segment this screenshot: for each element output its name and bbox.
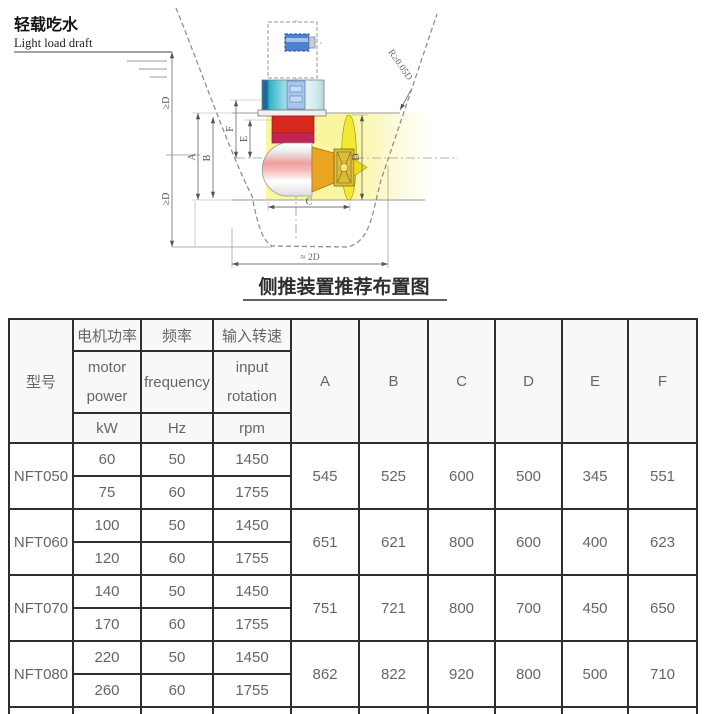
dim-label-above-d: ≥D	[161, 97, 172, 110]
electric-motor	[285, 34, 309, 51]
kw-cell: 170	[73, 608, 141, 641]
header-unit-hz: Hz	[141, 413, 213, 443]
rpm-cell: 1755	[213, 674, 291, 707]
header-en-line: rotation	[214, 382, 290, 411]
pod-body	[262, 143, 312, 196]
rpm-cell: 1755	[213, 608, 291, 641]
page: 轻载吃水 Light load draft	[0, 0, 707, 714]
kw-cell: 260	[73, 674, 141, 707]
dim-c-cell: 920	[428, 641, 495, 707]
kw-cell: 60	[73, 443, 141, 476]
empty-cell	[141, 707, 213, 714]
waterline-label-en: Light load draft	[14, 36, 93, 50]
empty-cell	[562, 707, 628, 714]
kw-cell: 120	[73, 542, 141, 575]
thruster-installation-diagram: 轻载吃水 Light load draft	[0, 0, 707, 316]
empty-cell	[628, 707, 697, 714]
rpm-cell: 1450	[213, 641, 291, 674]
kw-cell: 75	[73, 476, 141, 509]
empty-cell	[495, 707, 562, 714]
dim-f-cell: 710	[628, 641, 697, 707]
dim-d-cell: 700	[495, 575, 562, 641]
dim-label-b: B	[202, 154, 213, 161]
dim-a-cell: 545	[291, 443, 359, 509]
dim-b-cell: 721	[359, 575, 428, 641]
empty-cell	[213, 707, 291, 714]
header-dim-d: D	[495, 319, 562, 443]
header-motor-power-zh: 电机功率	[73, 319, 141, 351]
table-row: NFT060 100 50 1450 651 621 800 600 400 6…	[9, 509, 697, 542]
dim-label-d: D	[351, 153, 362, 160]
hz-cell: 50	[141, 509, 213, 542]
hub-center	[340, 164, 348, 172]
dim-label-2d: ≈ 2D	[300, 253, 319, 263]
motor-highlight	[286, 38, 308, 42]
header-dim-b: B	[359, 319, 428, 443]
hz-cell: 60	[141, 542, 213, 575]
empty-cell	[291, 707, 359, 714]
drive-coupling	[287, 81, 305, 109]
dim-a-cell: 651	[291, 509, 359, 575]
hz-cell: 50	[141, 575, 213, 608]
dim-f-cell: 551	[628, 443, 697, 509]
dim-a-cell: 751	[291, 575, 359, 641]
dim-draft-lines	[166, 52, 272, 247]
spec-table: 型号 电机功率 频率 输入转速 A B C D E F motor power …	[8, 318, 698, 714]
empty-cell	[428, 707, 495, 714]
waterline-label-zh: 轻载吃水	[14, 15, 79, 34]
table-row: NFT080 220 50 1450 862 822 920 800 500 7…	[9, 641, 697, 674]
gearbox-lower-band	[272, 133, 314, 143]
drive-coupling-flange-top	[290, 86, 302, 92]
dim-b-cell: 822	[359, 641, 428, 707]
motor-connector	[309, 37, 315, 48]
dim-e-cell: 400	[562, 509, 628, 575]
gearbox-upper	[272, 116, 314, 133]
dim-e-cell: 345	[562, 443, 628, 509]
dim-d-cell: 800	[495, 641, 562, 707]
dim-label-f: F	[225, 126, 236, 132]
table-row: NFT070 140 50 1450 751 721 800 700 450 6…	[9, 575, 697, 608]
header-en-line: input	[214, 353, 290, 382]
model-cell: NFT070	[9, 575, 73, 641]
model-cell: NFT050	[9, 443, 73, 509]
waterline	[14, 52, 172, 77]
dim-label-radius: R≥0.05D	[386, 48, 414, 83]
hz-cell: 60	[141, 476, 213, 509]
dim-e-cell: 450	[562, 575, 628, 641]
hz-cell: 50	[141, 443, 213, 476]
hz-cell: 60	[141, 608, 213, 641]
header-en-line: frequency	[142, 368, 212, 397]
dim-f-cell: 623	[628, 509, 697, 575]
drive-coupling-flange-bottom	[290, 96, 302, 102]
rpm-cell: 1450	[213, 443, 291, 476]
empty-cell	[359, 707, 428, 714]
dim-b-cell: 525	[359, 443, 428, 509]
header-input-rotation-en: input rotation	[213, 351, 291, 413]
diagram-title: 侧推装置推荐布置图	[258, 275, 429, 298]
dim-label-e: E	[239, 136, 250, 142]
dim-e-cell: 500	[562, 641, 628, 707]
dim-b-cell: 621	[359, 509, 428, 575]
header-input-rotation-zh: 输入转速	[213, 319, 291, 351]
model-cell: NFT060	[9, 509, 73, 575]
table-row-partial	[9, 707, 697, 714]
rpm-cell: 1755	[213, 542, 291, 575]
rpm-cell: 1450	[213, 509, 291, 542]
dim-c-cell: 800	[428, 575, 495, 641]
header-motor-power-en: motor power	[73, 351, 141, 413]
dim-label-below-d: ≥D	[161, 193, 172, 206]
dim-f-cell: 650	[628, 575, 697, 641]
empty-cell	[9, 707, 73, 714]
rpm-cell: 1755	[213, 476, 291, 509]
kw-cell: 100	[73, 509, 141, 542]
header-frequency-zh: 频率	[141, 319, 213, 351]
dim-label-c: C	[306, 197, 313, 208]
mounting-flange	[258, 110, 326, 116]
model-cell: NFT080	[9, 641, 73, 707]
dim-label-a: A	[187, 153, 198, 161]
header-dim-f: F	[628, 319, 697, 443]
dim-c-cell: 800	[428, 509, 495, 575]
dim-d-cell: 500	[495, 443, 562, 509]
kw-cell: 220	[73, 641, 141, 674]
header-frequency-en: frequency	[141, 351, 213, 413]
dim-c-cell: 600	[428, 443, 495, 509]
header-model: 型号	[9, 319, 73, 443]
hz-cell: 60	[141, 674, 213, 707]
header-unit-rpm: rpm	[213, 413, 291, 443]
dim-a-cell: 862	[291, 641, 359, 707]
header-dim-c: C	[428, 319, 495, 443]
kw-cell: 140	[73, 575, 141, 608]
hz-cell: 50	[141, 641, 213, 674]
header-dim-a: A	[291, 319, 359, 443]
rpm-cell: 1450	[213, 575, 291, 608]
empty-cell	[73, 707, 141, 714]
header-en-line: motor	[74, 353, 140, 382]
dim-d-cell: 600	[495, 509, 562, 575]
header-en-line: power	[74, 382, 140, 411]
table-row: NFT050 60 50 1450 545 525 600 500 345 55…	[9, 443, 697, 476]
header-unit-kw: kW	[73, 413, 141, 443]
header-dim-e: E	[562, 319, 628, 443]
